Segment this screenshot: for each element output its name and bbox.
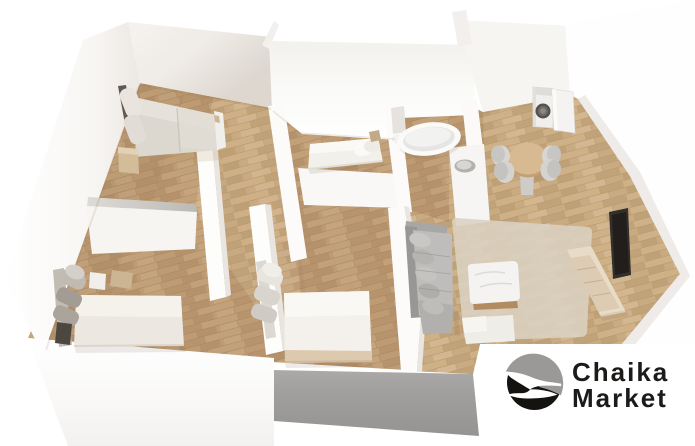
svg-text:Market: Market [572,383,668,413]
